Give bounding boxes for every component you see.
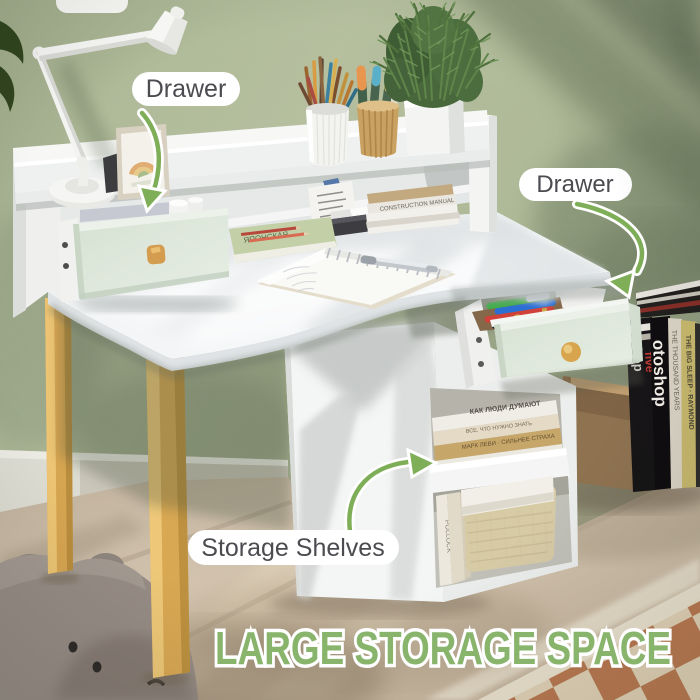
svg-text:LARGE STORAGE SPACE: LARGE STORAGE SPACE — [215, 622, 671, 674]
